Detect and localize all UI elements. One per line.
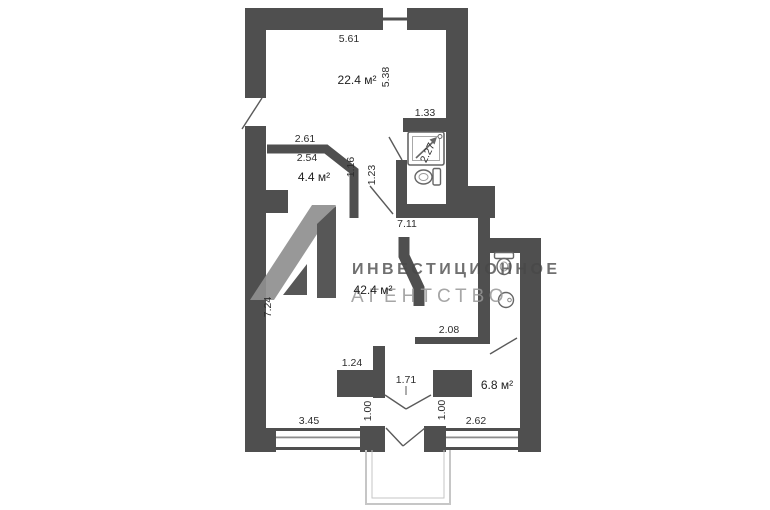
dim-1-00-right: 1.00: [437, 400, 448, 420]
dim-2-27: 2.27: [419, 142, 437, 165]
dim-3-45: 3.45: [299, 416, 319, 427]
room-area-22-4: 22.4 м²: [338, 74, 377, 86]
dim-1-33: 1.33: [415, 108, 435, 119]
dim-2-08: 2.08: [439, 325, 459, 336]
dim-2-62: 2.62: [466, 416, 486, 427]
floor-plan: ИНВЕСТИЦИОННОЕ АГЕНТСТВО 5.61 5.38 22.4 …: [0, 0, 770, 510]
dim-2-54: 2.54: [297, 153, 317, 164]
room-area-6-8: 6.8 м²: [481, 379, 513, 391]
dim-5-38: 5.38: [381, 67, 392, 87]
dim-7-24: 7.24: [263, 297, 274, 317]
dim-1-71: 1.71: [396, 375, 416, 386]
dim-1-00-left: 1.00: [363, 401, 374, 421]
dim-1-24: 1.24: [342, 358, 362, 369]
dim-7-11: 7.11: [397, 219, 417, 230]
dim-1-23: 1.23: [367, 165, 378, 185]
dim-1-16: 1.16: [346, 157, 357, 177]
dim-5-61: 5.61: [339, 34, 359, 45]
room-area-4-4: 4.4 м²: [298, 171, 330, 183]
room-area-42-4: 42.4 м²: [354, 284, 393, 296]
labels-layer: 5.61 5.38 22.4 м² 1.33 2.61 2.54 1.16 4.…: [0, 0, 770, 510]
dim-2-61: 2.61: [295, 134, 315, 145]
